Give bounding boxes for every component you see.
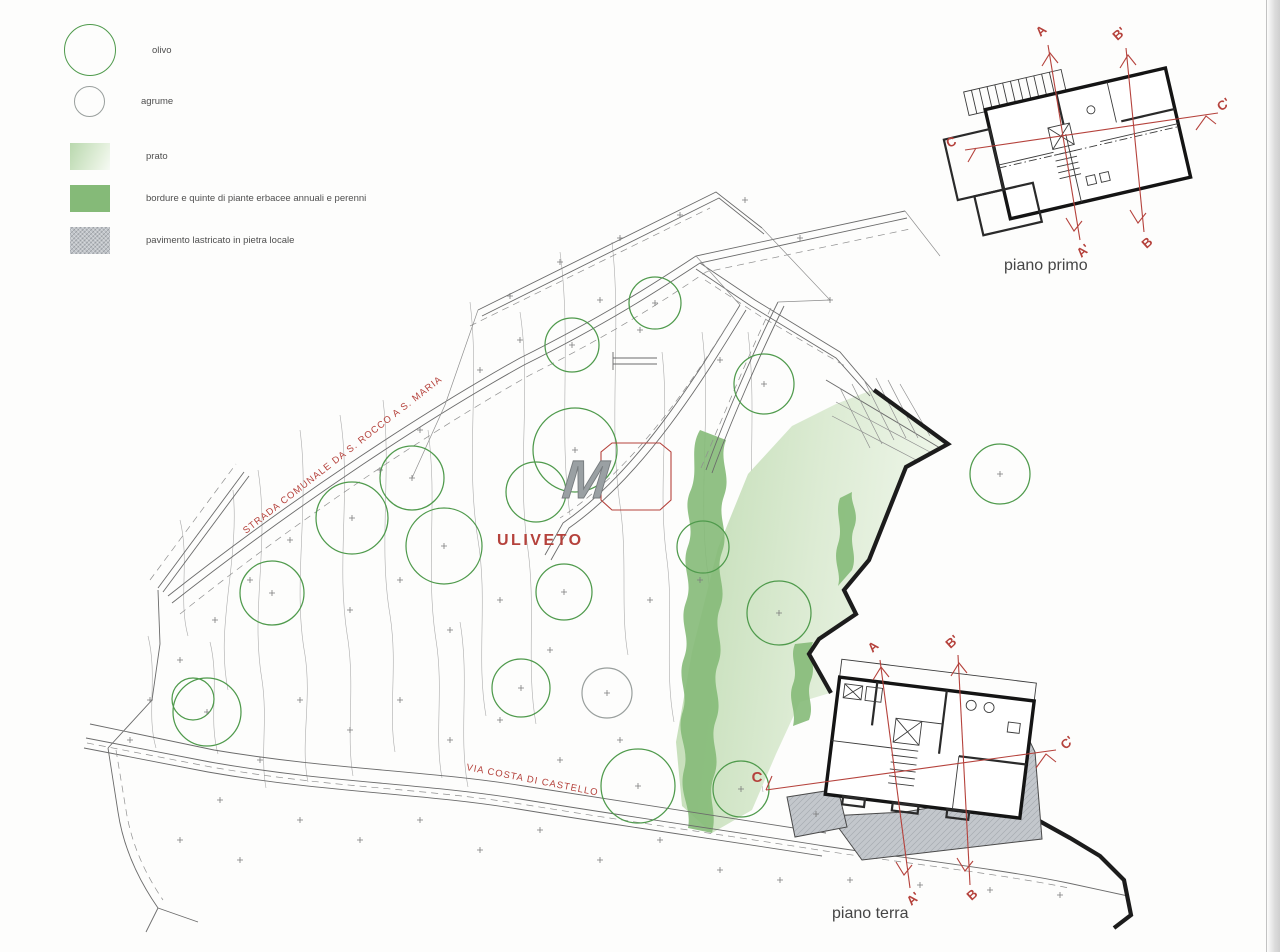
section-label-b-primo: B [1138, 234, 1155, 251]
uliveto-label: ULIVETO [497, 532, 584, 549]
legend-item-prato: prato [62, 143, 422, 170]
legend-label-olivo: olivo [152, 45, 172, 56]
first-floor-title: piano primo [1004, 257, 1088, 274]
drawing-stage: A A' B' B C C' A A' B' B C C' [0, 0, 1280, 952]
legend-label-bordure: bordure e quinte di piante erbacee annua… [146, 193, 366, 204]
section-label-b-prime-primo: B' [1109, 24, 1128, 44]
agrume-circle-symbol [74, 86, 105, 117]
legend-item-bordure: bordure e quinte di piante erbacee annua… [62, 185, 422, 212]
legend: olivo agrume prato bordure e quinte di p… [62, 24, 422, 254]
legend-label-agrume: agrume [141, 96, 173, 107]
olivo-circle-symbol [64, 24, 116, 76]
logo-letter-m: M [560, 450, 613, 510]
section-label-c-terra: C [752, 769, 763, 786]
section-label-b-prime-terra: B' [942, 632, 961, 652]
bordure-swatch-symbol [70, 185, 110, 212]
section-label-c-prime-terra: C' [1057, 733, 1076, 753]
section-label-a-terra: A [864, 638, 881, 656]
contour-lines [148, 242, 763, 792]
prato-swatch-symbol [70, 143, 110, 170]
section-label-b-terra: B [963, 886, 980, 903]
ground-floor-title: piano terra [832, 905, 909, 922]
legend-item-agrume: agrume [62, 86, 422, 117]
legend-label-prato: prato [146, 151, 168, 162]
upper-road-label: STRADA COMUNALE DA S. ROCCO A S. MARIA [241, 374, 445, 536]
ground-floor-building [824, 659, 1036, 826]
paving-swatch-symbol [70, 227, 110, 254]
scanned-site-plan-page: { "legend": { "items": [ { "id": "olivo"… [0, 0, 1280, 952]
section-label-a-primo: A [1032, 22, 1049, 40]
section-label-c-prime-primo: C' [1214, 95, 1233, 114]
scan-edge-shadow [1267, 0, 1280, 952]
legend-item-paving: pavimento lastricato in pietra locale [62, 227, 422, 254]
legend-item-olivo: olivo [62, 24, 422, 76]
legend-label-paving: pavimento lastricato in pietra locale [146, 235, 294, 246]
